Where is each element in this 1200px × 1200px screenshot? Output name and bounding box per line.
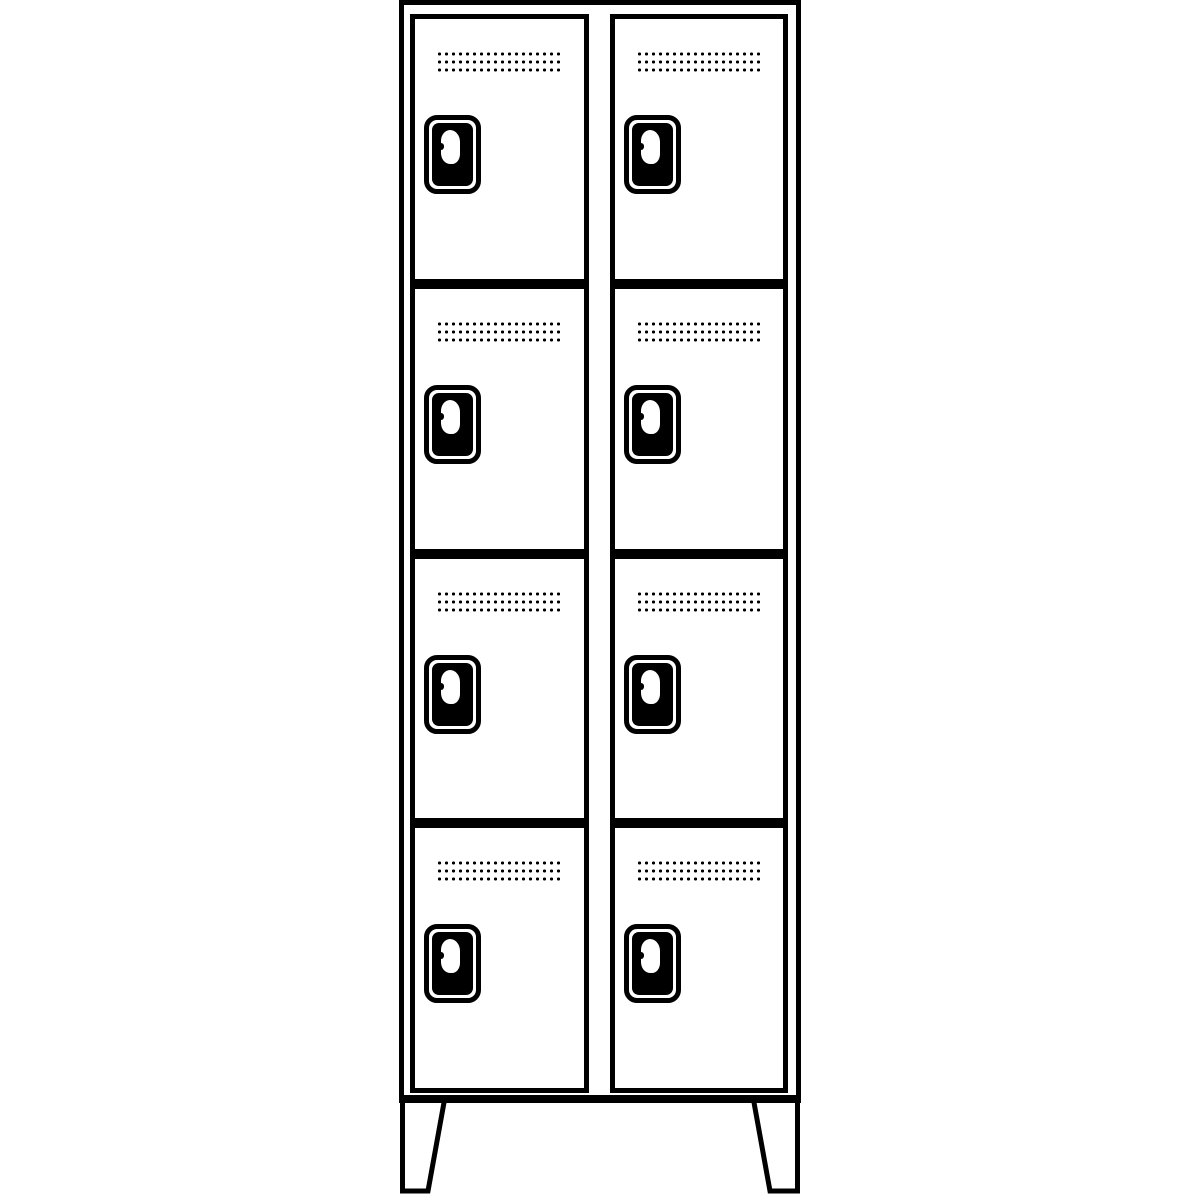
locker-cabinet — [399, 0, 801, 1103]
lock-plate — [632, 393, 673, 456]
vent-grille-icon — [636, 50, 762, 74]
keyhole-cutout-icon — [641, 670, 660, 704]
keyhole-cutout-icon — [641, 400, 660, 434]
locker-door — [410, 14, 589, 284]
lock-plate — [632, 123, 673, 186]
locker-door — [410, 823, 589, 1093]
vent-grille-icon — [436, 320, 562, 344]
locker-door — [610, 284, 789, 554]
locker-door — [410, 554, 589, 824]
vent-grille-icon — [636, 859, 762, 883]
lock-plate — [432, 123, 473, 186]
lock-plate — [632, 663, 673, 726]
lock-plate — [432, 932, 473, 995]
lock-plate — [632, 932, 673, 995]
right-foot — [753, 1103, 798, 1191]
lock-icon — [624, 924, 681, 1003]
locker-door — [610, 823, 789, 1093]
vent-grille-icon — [436, 859, 562, 883]
keyhole-cutout-icon — [641, 130, 660, 164]
left-foot — [403, 1103, 446, 1191]
keyhole-cutout-icon — [441, 670, 460, 704]
product-drawing-canvas — [0, 0, 1200, 1200]
vent-grille-icon — [436, 50, 562, 74]
lock-icon — [424, 115, 481, 194]
keyhole-cutout-icon — [641, 939, 660, 973]
lock-plate — [432, 663, 473, 726]
vent-grille-icon — [636, 590, 762, 614]
vent-grille-icon — [436, 590, 562, 614]
lock-icon — [424, 924, 481, 1003]
keyhole-cutout-icon — [441, 939, 460, 973]
locker-door — [410, 284, 589, 554]
keyhole-cutout-icon — [441, 130, 460, 164]
keyhole-cutout-icon — [441, 400, 460, 434]
lock-icon — [624, 385, 681, 464]
locker-door — [610, 554, 789, 824]
lock-icon — [424, 655, 481, 734]
locker-feet — [399, 1103, 801, 1198]
lock-icon — [624, 655, 681, 734]
lock-plate — [432, 393, 473, 456]
locker-door — [610, 14, 789, 284]
lock-icon — [424, 385, 481, 464]
vent-grille-icon — [636, 320, 762, 344]
lock-icon — [624, 115, 681, 194]
locker-column-left — [410, 14, 589, 1093]
locker-column-right — [610, 14, 789, 1093]
